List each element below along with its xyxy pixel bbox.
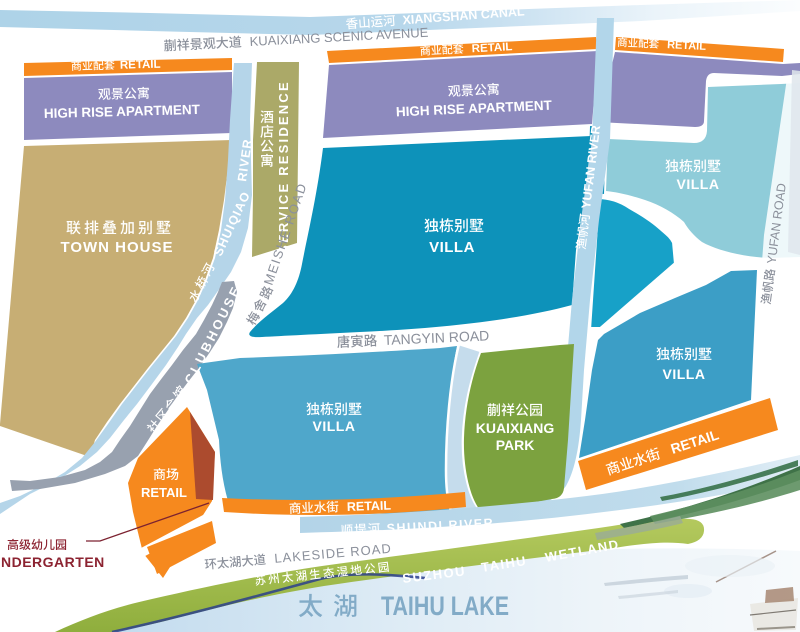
svg-text:RETAIL: RETAIL	[141, 485, 187, 500]
svg-text:VILLA: VILLA	[313, 418, 356, 434]
svg-text:KUAIXIANG: KUAIXIANG	[476, 420, 555, 436]
svg-text:RETAIL: RETAIL	[347, 498, 392, 514]
svg-text:RETAIL: RETAIL	[120, 59, 161, 72]
svg-text:PARK: PARK	[496, 437, 535, 453]
svg-text:RETAIL: RETAIL	[471, 41, 512, 55]
svg-text:KINDERGARTEN: KINDERGARTEN	[0, 554, 105, 570]
svg-text:VILLA: VILLA	[677, 176, 720, 192]
svg-text:VILLA: VILLA	[663, 366, 706, 382]
svg-text:TAIHU LAKE: TAIHU LAKE	[381, 591, 509, 621]
svg-text:VILLA: VILLA	[429, 239, 475, 256]
svg-text:TOWN HOUSE: TOWN HOUSE	[60, 239, 173, 256]
svg-text:RETAIL: RETAIL	[667, 39, 707, 53]
